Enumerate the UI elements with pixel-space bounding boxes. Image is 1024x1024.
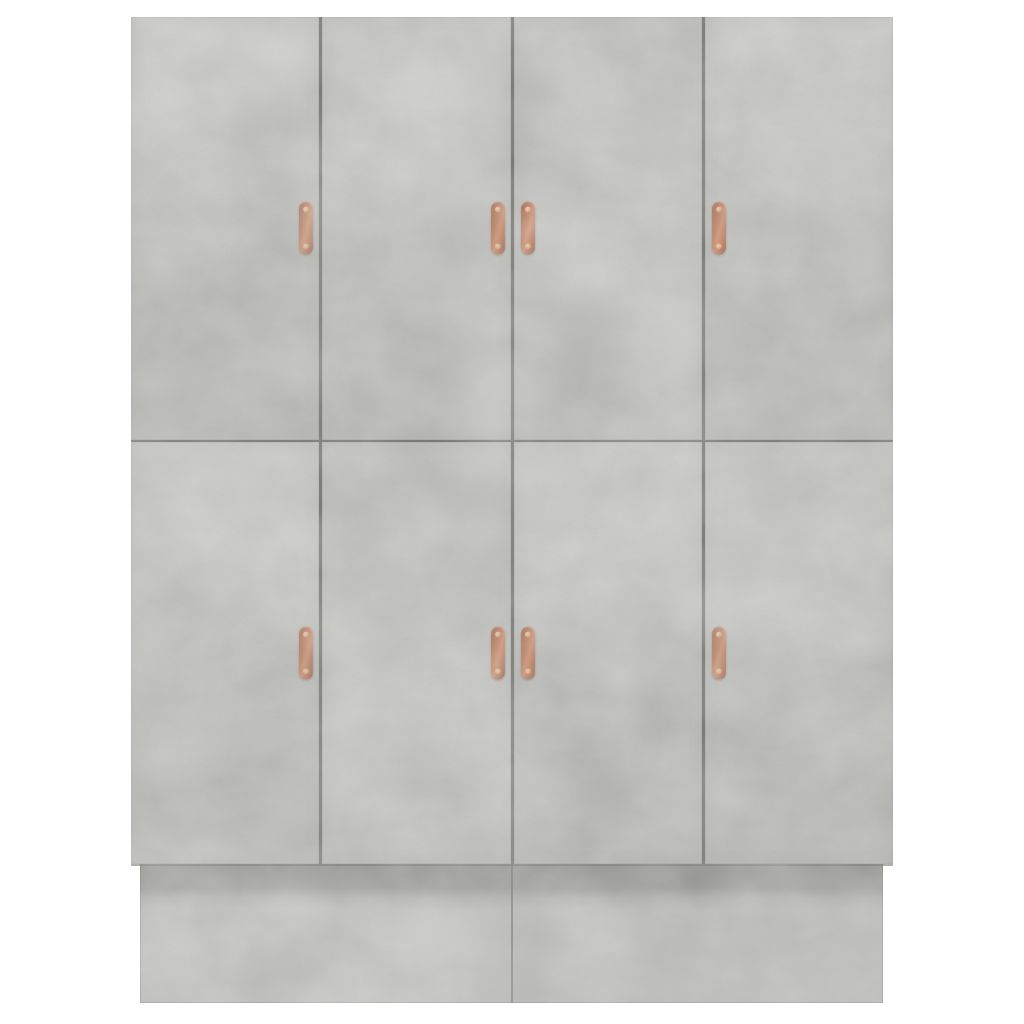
handle-screw-top [495,207,501,213]
handle-screw-bottom [525,244,531,250]
door-handle [299,626,313,679]
door-bottom-4 [705,442,893,865]
handle-screw-bottom [716,668,722,674]
handle-screw-bottom [303,668,309,674]
door-handle [712,202,726,255]
door-handle [712,626,726,679]
handle-screw-top [495,631,501,637]
handle-screw-bottom [716,244,722,250]
handle-screw-top [303,631,309,637]
door-top-1 [131,17,319,440]
handle-screw-top [525,207,531,213]
door-handle [491,626,505,679]
door-grid [131,17,893,864]
door-handle [299,202,313,255]
plinth-center-seam [511,864,513,1003]
handle-screw-top [303,207,309,213]
door-bottom-1 [131,442,319,865]
handle-screw-bottom [303,244,309,250]
handle-screw-bottom [525,668,531,674]
plinth-base [140,864,883,1003]
product-photo [0,0,1024,1024]
handle-screw-top [716,631,722,637]
door-top-3 [514,17,702,440]
door-bottom-3 [514,442,702,865]
door-handle [521,626,535,679]
handle-screw-top [716,207,722,213]
handle-screw-top [525,631,531,637]
handle-screw-bottom [495,244,501,250]
door-handle [521,202,535,255]
door-bottom-2 [322,442,510,865]
handle-screw-bottom [495,668,501,674]
door-top-4 [705,17,893,440]
door-top-2 [322,17,510,440]
door-handle [491,202,505,255]
